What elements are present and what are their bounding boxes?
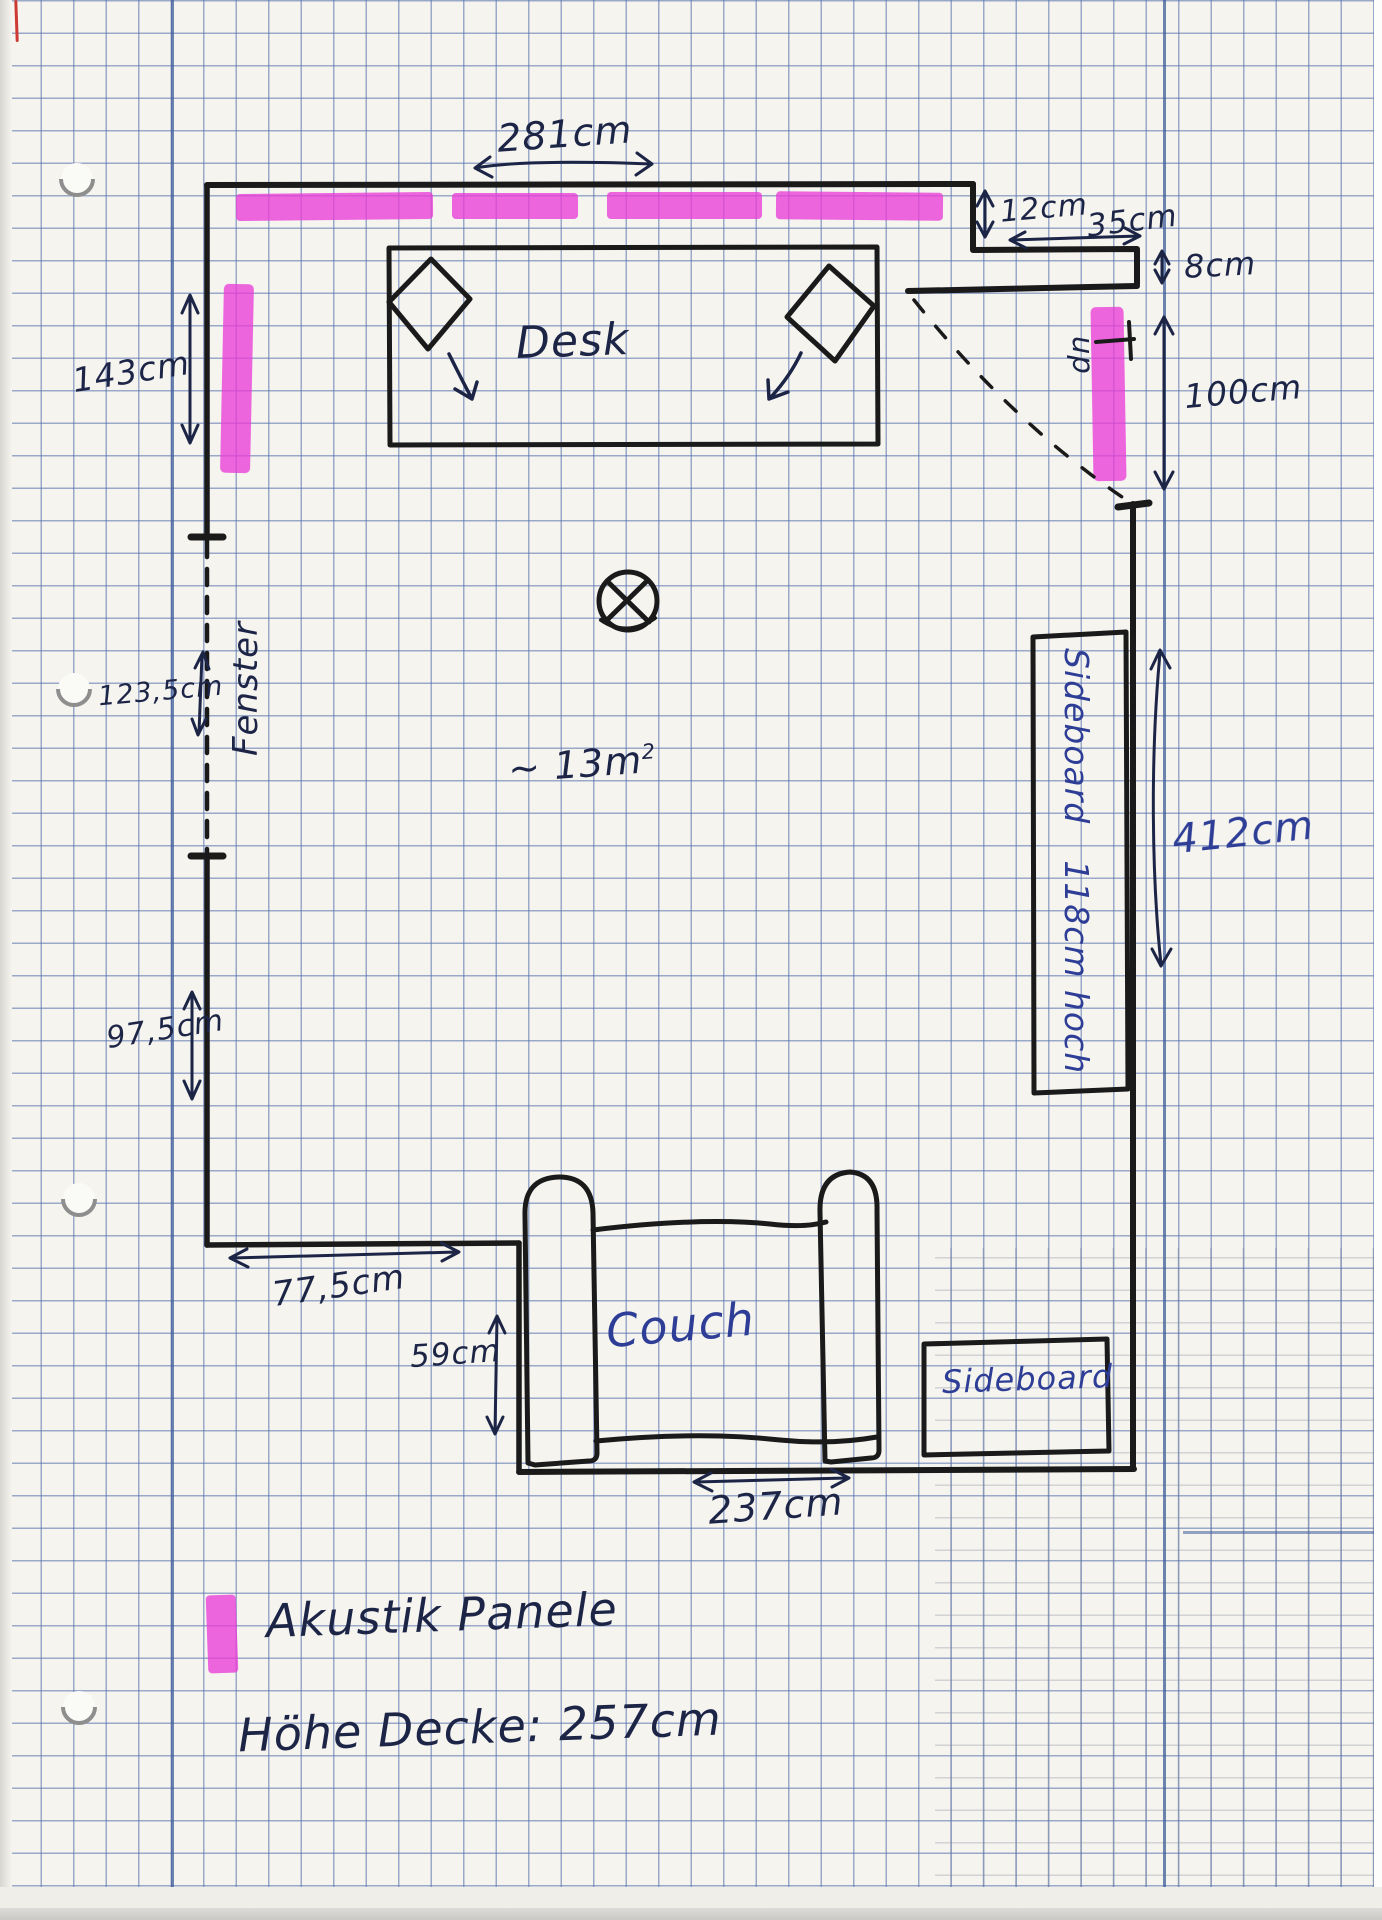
stairs-up-label: up: [1066, 336, 1100, 375]
speaker-icon: [787, 266, 874, 361]
acoustic-panel-highlight: [776, 191, 943, 220]
acoustic-panel-highlight: [452, 193, 578, 219]
measurement-top-width: 281cm: [496, 107, 634, 160]
acoustic-panel-highlight: [220, 284, 254, 474]
arrow-412cm: [1151, 650, 1171, 966]
page-bottom-margin: [0, 1887, 1382, 1908]
couch-armrest-right: [820, 1172, 879, 1462]
room-area-exponent: 2: [641, 739, 657, 764]
room-area-value: ~ 13m: [507, 738, 644, 791]
measurement-ledge-depth: 8cm: [1183, 244, 1257, 286]
punch-hole: [63, 1691, 95, 1723]
desk-group: [389, 247, 878, 445]
floor-plan-sketch-page: 281cm 12cm 35cm 8cm 100cm 143cm 123,5cm …: [0, 0, 1382, 1920]
arrow-12cm: [977, 191, 993, 237]
wall-bottom: [519, 1469, 1134, 1472]
scanner-bed-strip: [0, 1908, 1382, 1920]
punch-hole: [63, 1183, 95, 1215]
acoustic-panel-highlight: [236, 192, 433, 221]
stair-tick-vertical: [1129, 322, 1131, 359]
sideboard-tall-height-note: 118cm hoch: [1057, 860, 1096, 1074]
punch-hole: [61, 163, 93, 195]
wall-top: [207, 184, 973, 185]
wall-ledge: [908, 286, 1137, 291]
desk-label: Desk: [515, 314, 630, 369]
sideboard-tall-label: Sideboard118cm hoch: [1057, 648, 1096, 1074]
punch-hole: [58, 673, 90, 705]
page-right-edge: [1374, 0, 1382, 1920]
measurement-couch-offset: 59cm: [409, 1333, 502, 1375]
couch-back-edge: [593, 1222, 826, 1230]
floor-plan-drawing: [0, 0, 1382, 1920]
sideboard-tall-name: Sideboard: [1057, 648, 1096, 824]
door-swing-arc: [914, 300, 1122, 497]
window-label: Fenster: [226, 621, 266, 756]
speaker-icon: [389, 259, 470, 349]
page-left-edge-shadow: [0, 0, 12, 1920]
speaker-arrow-right: [768, 353, 801, 399]
legend-highlight-swatch: [206, 1595, 239, 1674]
arrow-8cm: [1155, 251, 1169, 283]
acoustic-panel-highlight: [1090, 307, 1126, 482]
measurement-couch-width: 237cm: [707, 1479, 845, 1532]
speaker-arrow-left: [449, 354, 477, 399]
couch-armrest-left: [525, 1177, 597, 1465]
acoustic-panel-highlight: [607, 192, 762, 219]
couch-front-edge: [596, 1436, 877, 1442]
wall-bottom-left: [207, 1243, 519, 1245]
door-jamb-tick: [1118, 503, 1149, 507]
sideboards: [924, 632, 1128, 1455]
ceiling-lamp-icon: [599, 572, 657, 630]
arrow-100cm: [1155, 317, 1173, 489]
desk-outline: [389, 247, 878, 445]
sideboard-small-label: Sideboard: [941, 1357, 1113, 1401]
